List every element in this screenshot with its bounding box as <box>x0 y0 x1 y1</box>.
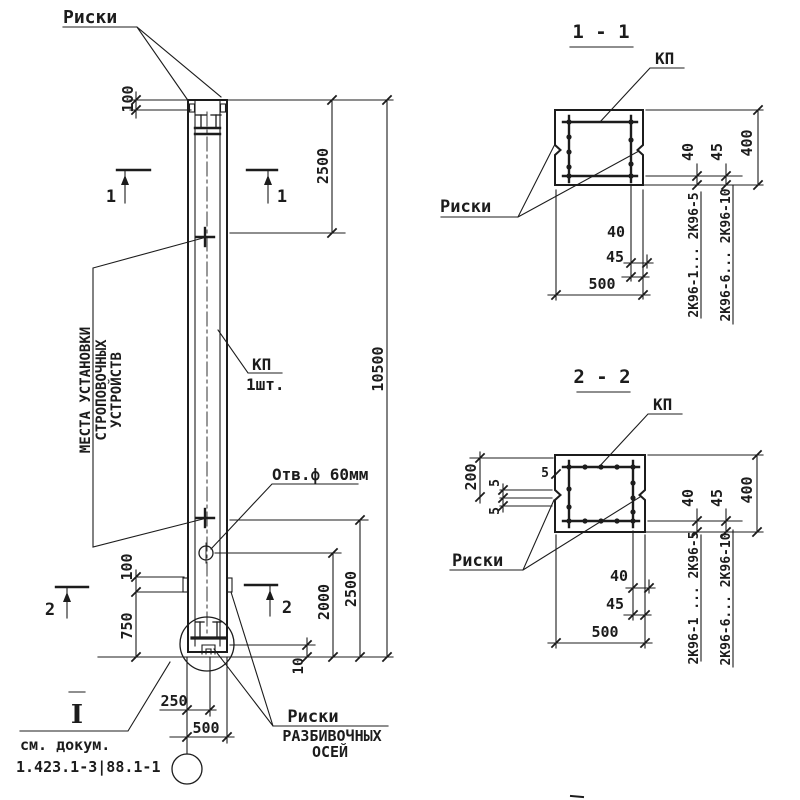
s11-marks-range-1: 2К96-1... 2К96-5 <box>687 192 702 317</box>
cut2-right-label: 2 <box>282 598 292 618</box>
detail-mark-label: I <box>71 700 83 730</box>
s22-dim-right-45: 45 <box>708 489 726 507</box>
section-2-2-kp-label: КП <box>653 395 672 414</box>
s22-dim-left-5a: 5 <box>541 466 549 481</box>
strop-point-lower <box>196 509 214 527</box>
riski-top-label: Риски <box>63 7 117 28</box>
s22-marks-range-2: 2К96-6... 2К96-10 <box>719 532 734 665</box>
cut-arrow-icon <box>63 592 71 602</box>
s11-marks-range-2: 2К96-6... 2К96-10 <box>719 188 734 321</box>
s22-marks-range-1: 2К96-1 ... 2К96-5 <box>687 531 702 664</box>
riski-axes-line3: ОСЕЙ <box>312 742 348 761</box>
technical-drawing-svg: 1 1 2 2 Риски МЕСТА УСТАНОВКИ СТРОПОВОЧН… <box>0 0 800 800</box>
riska-mark-top-left <box>190 104 195 112</box>
s22-dim-left-5b: 5 <box>488 479 503 487</box>
section-2-2-view: 2 - 2 КП Риски <box>450 366 763 667</box>
kp-qty-label: 1шт. <box>246 375 285 394</box>
dim-left-750: 750 <box>118 612 136 639</box>
s22-dim-bottom-500: 500 <box>591 623 618 641</box>
section-1-1-view: 1 - 1 КП Риски <box>440 21 763 324</box>
dimension-ticks <box>132 96 391 741</box>
hole-label: Отв.ф 60мм <box>272 465 368 484</box>
riska-mark-bottom-right <box>228 578 233 592</box>
s22-dim-right-40: 40 <box>679 489 697 507</box>
dim-top-100: 100 <box>119 85 137 112</box>
s11-dim-right-400: 400 <box>738 129 756 156</box>
s11-dim-bottom-40: 40 <box>607 223 625 241</box>
column-outline <box>180 100 234 671</box>
cut-arrow-icon <box>121 175 129 185</box>
cut1-left-label: 1 <box>106 187 116 207</box>
section-2-2-title: 2 - 2 <box>573 366 630 388</box>
drawing-sheet: 1 1 2 2 Риски МЕСТА УСТАНОВКИ СТРОПОВОЧН… <box>0 0 800 800</box>
section-2-2-kp-leader <box>598 414 682 468</box>
section-cut-1-right: 1 <box>247 170 287 207</box>
strop-label-line3: УСТРОЙСТВ <box>108 352 125 428</box>
section-1-1-title: 1 - 1 <box>572 21 629 43</box>
dim-left-100: 100 <box>118 553 136 580</box>
cut-arrow-icon <box>266 590 274 600</box>
strop-label-line2: СТРОПОВОЧНЫХ <box>94 339 110 441</box>
s22-dim-left-5c: 5 <box>488 507 503 515</box>
elevation-dimension-lines <box>98 92 393 784</box>
axis-bubble <box>172 754 202 784</box>
dim-base-500: 500 <box>192 719 219 737</box>
s22-dim-bottom-40: 40 <box>610 567 628 585</box>
cut1-right-label: 1 <box>277 187 287 207</box>
s22-dim-bottom-45: 45 <box>606 595 624 613</box>
cut2-left-label: 2 <box>45 600 55 620</box>
dim-bot-2500: 2500 <box>342 571 360 607</box>
section-2-2-riski-label: Риски <box>452 551 503 571</box>
see-doc-line1: см. докум. <box>20 736 110 754</box>
section-1-1-riski-label: Риски <box>440 197 491 217</box>
section-cut-1-left: 1 <box>106 170 150 207</box>
section-cut-2-right: 2 <box>245 585 292 618</box>
section-1-1-kp-label: КП <box>655 49 674 68</box>
s11-dim-right-40: 40 <box>679 143 697 161</box>
strop-label-line1: МЕСТА УСТАНОВКИ <box>78 327 94 453</box>
dim-bot-2000: 2000 <box>315 584 333 620</box>
s11-dim-right-45: 45 <box>708 143 726 161</box>
s22-dim-right-400: 400 <box>738 476 756 503</box>
riska-mark-top-right <box>221 104 226 112</box>
see-doc-line2: 1.423.1-3|88.1-1 <box>16 758 161 777</box>
dim-top-2500: 2500 <box>314 148 332 184</box>
section-cut-2-left: 2 <box>45 587 88 620</box>
riski-axes-line1: Риски <box>287 707 338 727</box>
dim-bot-10: 10 <box>291 658 307 675</box>
section-2-2-rebar-cage <box>563 461 639 527</box>
s11-dim-bottom-500: 500 <box>588 275 615 293</box>
elevation-view: 1 1 2 2 Риски МЕСТА УСТАНОВКИ СТРОПОВОЧН… <box>16 7 393 784</box>
cut-arrow-icon <box>264 175 272 185</box>
riska-mark-bottom-left <box>183 578 188 592</box>
dim-overall-10500: 10500 <box>369 346 387 391</box>
dim-base-250: 250 <box>160 692 187 710</box>
kp-label: КП <box>252 355 271 374</box>
print-artifact <box>571 796 583 797</box>
strop-point-upper <box>196 228 214 246</box>
s22-dim-left-200: 200 <box>462 463 480 490</box>
s11-dim-bottom-45: 45 <box>606 248 624 266</box>
